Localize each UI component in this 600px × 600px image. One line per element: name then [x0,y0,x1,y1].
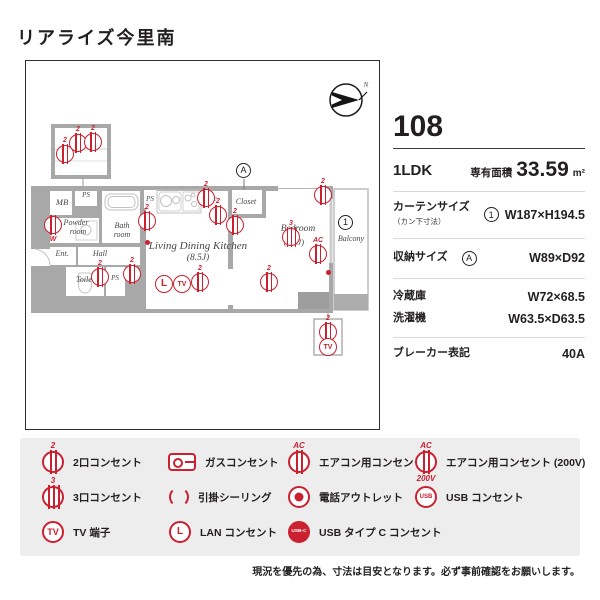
legend-item-lan: L LAN コンセント [169,521,277,543]
symbol-legend: 2 2口コンセント ガスコンセント AC エアコン用コンセント AC200V エ… [20,438,580,556]
room-label-ps: PS [82,192,90,199]
outlet-count-label: 2 [198,265,202,272]
compass-north-label: N [364,82,369,89]
outlet-2-icon: 2 [191,273,209,291]
legend-item-ac: AC エアコン用コンセント [288,451,424,473]
outlet-2-icon: 2 [209,206,227,224]
disclaimer-note: 現況を優先の為、寸法は目安となります。必ず事前確認をお願いします。 [20,563,580,578]
tv-terminal-icon: TV [42,521,64,543]
outlet-count-label: 2 [130,257,134,264]
outlet-count-label: 2 [326,315,330,322]
outlet-2-icon: 2 [197,189,215,207]
outlet-2-icon: 2 [42,451,64,473]
room-label-bath-1: Bath [114,222,129,230]
usb-outlet-icon: USB [415,486,437,508]
outlet-2-icon: 2 [226,216,244,234]
curtain-label: カーテンサイズ [393,201,470,213]
storage-marker: A [462,251,477,266]
curtain-value: W187×H194.5 [505,208,585,222]
ac-outlet-icon: AC [288,451,310,473]
ac-outlet-icon: AC [309,245,327,263]
legend-item-ac200: AC200V エアコン用コンセント (200V) [415,451,585,473]
outlet-count-label: 2 [204,181,208,188]
outlet-count-label: 3 [289,220,293,227]
ac-label: AC [313,237,323,244]
outlet-count-label: 2 [267,265,271,272]
outlet-2-icon: 2 [91,268,109,286]
outlet-count-label: 2 [321,178,325,185]
room-label-mb: MB [56,198,68,207]
legend-item-outlet3: 3 3口コンセント [42,486,142,508]
area-unit: m² [573,168,585,179]
fridge-value: W72×68.5 [528,290,585,304]
outlet-3-icon: 3 [282,228,300,246]
room-label-bath-2: room [114,231,131,239]
room-label-balcony: Balcony [338,235,364,243]
gas-outlet-icon [168,453,196,471]
legend-item-usb: USB USB コンセント [415,486,524,508]
tv-outlet-icon: TV [173,275,191,293]
curtain-marker: 1 [484,207,499,222]
outlet-3-icon: 3 [42,486,64,508]
washer-value: W63.5×D63.5 [508,312,585,326]
washer-row: 洗濯機 W63.5×D63.5 [393,308,585,330]
curtain-sublabel: （カン下寸法） [393,217,446,226]
storage-label: 収納サイズ [393,251,448,265]
breaker-value: 40A [562,347,585,361]
room-label-closet: Closet [236,198,256,206]
outlet-count-label: 2 [145,204,149,211]
curtain-marker-1: 1 [338,215,353,230]
floor-plan-panel: MB PS Powder room Bath room PS F Ent. Ha… [25,60,380,430]
storage-marker-a: A [236,163,251,178]
area-value: 33.59 [516,158,569,182]
room-label-powder-2: room [70,228,87,236]
tv-label: TV [319,338,337,356]
outlet-count-label: 2 [76,126,80,133]
breaker-label: ブレーカー表記 [393,347,470,361]
storage-size-row: 収納サイズ A W89×D92 [393,239,585,279]
outlet-count-label: 2 [98,260,102,267]
room-label-ldk-size: (8.5J) [187,254,209,264]
outlet-count-label: 2 [91,125,95,132]
washer-outlet-icon: W [44,216,62,234]
tv-outlet-icon: TV [319,338,337,356]
area-label: 専有面積 [470,165,512,180]
washer-label: W [50,236,57,243]
usb-c-outlet-icon: USB-C [288,521,310,543]
layout-type: 1LDK [393,162,432,179]
appliance-rows: 冷蔵庫 W72×68.5 洗濯機 W63.5×D63.5 [393,279,585,338]
page-title: リアライズ今里南 [17,24,176,50]
lan-outlet-icon: L [169,521,191,543]
legend-item-usbc: USB-C USB タイプ C コンセント [288,521,442,543]
fridge-row: 冷蔵庫 W72×68.5 [393,286,585,308]
lan-outlet-icon: L [155,275,173,293]
ac-200v-outlet-icon: AC200V [415,451,437,473]
room-label-ps-small: PS [111,275,119,282]
phone-outlet-dot-icon [326,270,331,275]
fridge-label: 冷蔵庫 [393,290,426,304]
room-label-kitchen-ps: PS [146,196,154,203]
outlet-2-icon: 2 [84,133,102,151]
phone-outlet-icon [288,486,310,508]
room-label-powder-1: Powder [64,219,89,227]
legend-item-ceiling: 引掛シーリング [169,487,272,507]
legend-item-gas: ガスコンセント [168,453,279,471]
curtain-size-row: カーテンサイズ （カン下寸法） 1 W187×H194.5 [393,192,585,239]
room-label-ldk: Living Dining Kitchen [149,241,247,252]
phone-outlet-dot-icon [145,240,150,245]
lan-label: L [155,275,173,293]
legend-item-tv: TV TV 端子 [42,521,110,543]
floor-plan-page: リアライズ今里南 [0,0,600,600]
room-label-entrance: Ent. [55,250,68,258]
washer-label: 洗濯機 [393,312,426,326]
legend-item-phone: 電話アウトレット [288,486,403,508]
outlet-count-label: 2 [233,208,237,215]
ceiling-rose-icon [169,487,189,507]
room-label-hall: Hall [93,250,107,258]
tv-label: TV [173,275,191,293]
layout-area-row: 1LDK 専有面積 33.59 m² [393,149,585,192]
outlet-count-label: 2 [63,137,67,144]
outlet-2-icon: 2 [123,265,141,283]
outlet-count-label: 2 [216,198,220,205]
unit-number: 108 [393,110,585,149]
breaker-row: ブレーカー表記 40A [393,338,585,370]
storage-value: W89×D92 [529,251,585,265]
outlet-2-icon: 2 [138,212,156,230]
legend-item-outlet2: 2 2口コンセント [42,451,142,473]
outlet-2-icon: 2 [260,273,278,291]
outlet-2-icon: 2 [314,186,332,204]
unit-info-panel: 108 1LDK 専有面積 33.59 m² カーテンサイズ （カン下寸法） 1… [393,110,585,370]
